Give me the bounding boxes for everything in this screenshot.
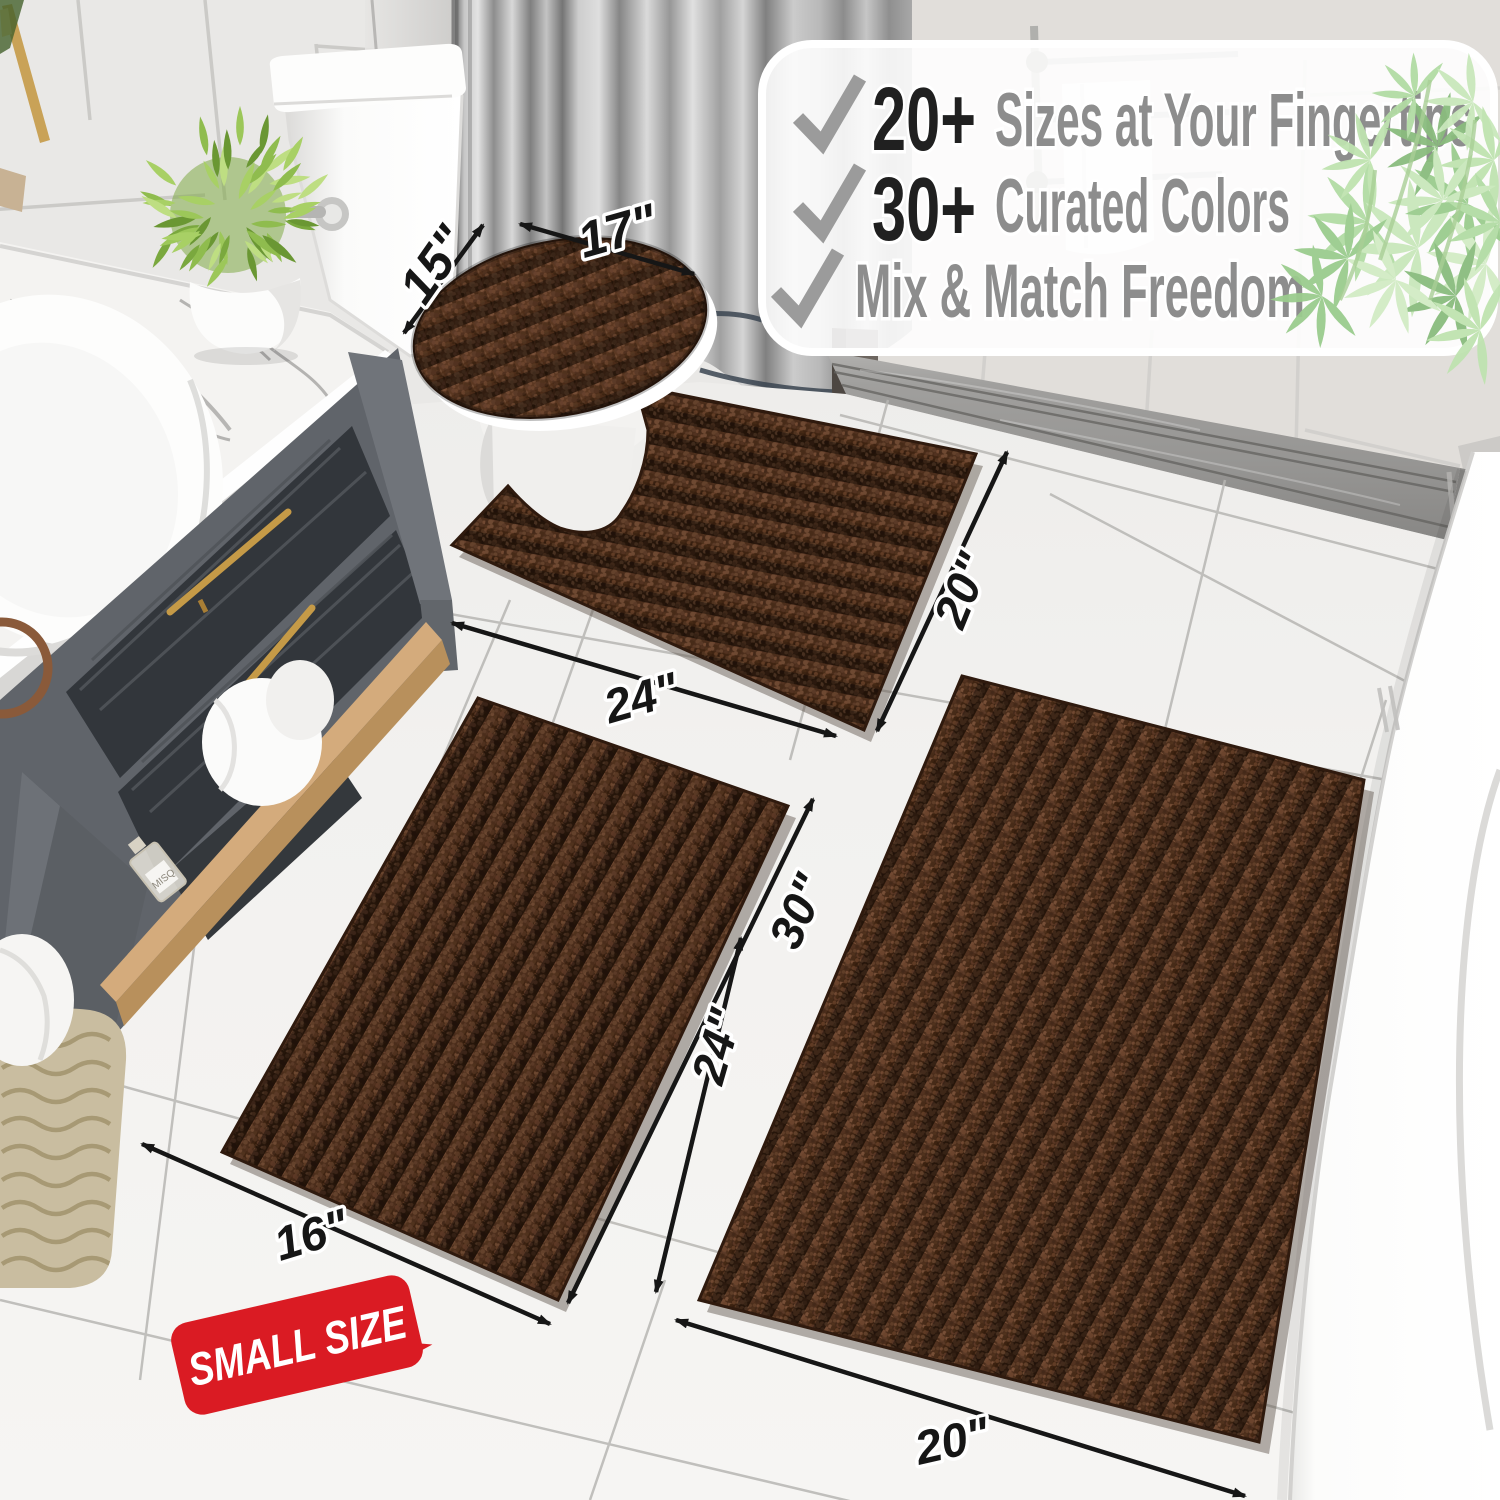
svg-text:Mix & Match Freedom: Mix & Match Freedom xyxy=(855,249,1305,334)
svg-text:Curated Colors: Curated Colors xyxy=(995,164,1290,249)
svg-text:Sizes at Your Fingertips: Sizes at Your Fingertips xyxy=(995,78,1473,163)
svg-text:20+: 20+ xyxy=(872,70,976,170)
svg-text:30+: 30+ xyxy=(872,160,976,260)
